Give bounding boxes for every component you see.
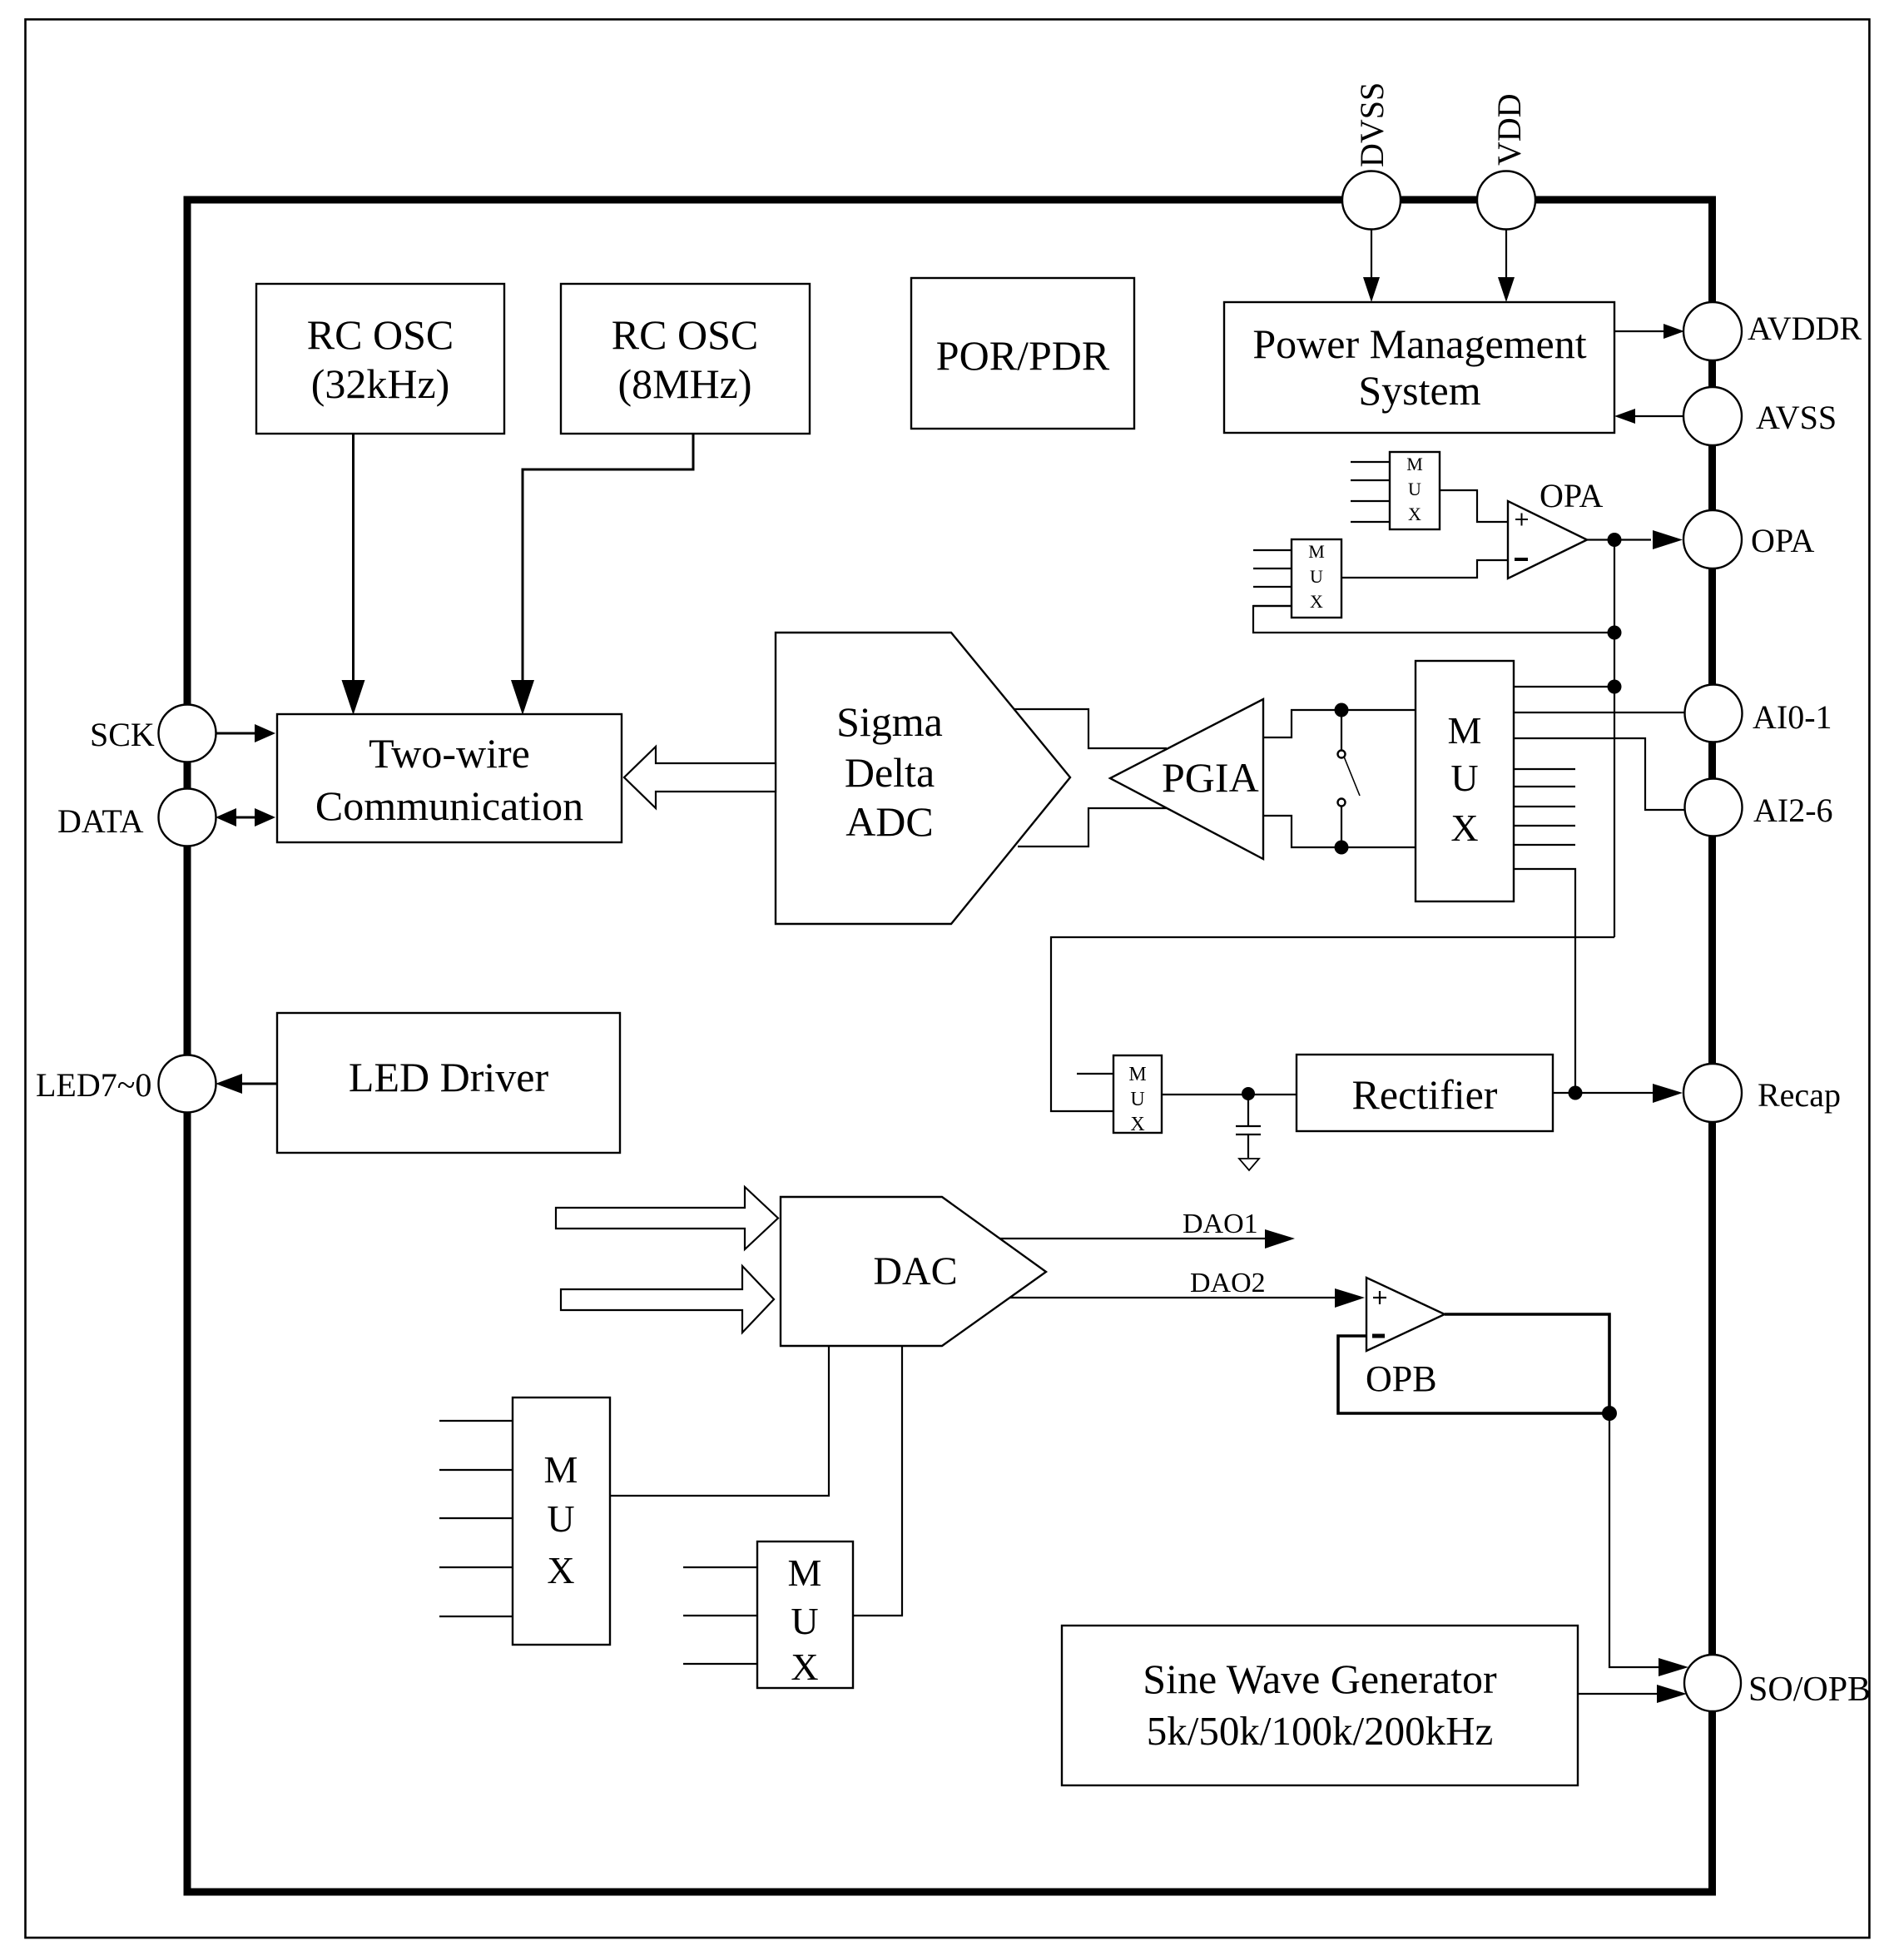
svg-text:U: U — [1130, 1089, 1144, 1110]
svg-text:M: M — [1406, 454, 1423, 474]
svg-text:M: M — [544, 1448, 578, 1491]
svg-text:OPA: OPA — [1751, 522, 1814, 559]
svg-text:X: X — [1310, 591, 1323, 612]
svg-text:DATA: DATA — [57, 802, 144, 840]
svg-text:PGIA: PGIA — [1162, 754, 1259, 801]
svg-text:X: X — [547, 1549, 574, 1591]
svg-text:Recap: Recap — [1758, 1076, 1841, 1114]
svg-text:SO/OPB: SO/OPB — [1748, 1671, 1871, 1709]
svg-text:(8MHz): (8MHz) — [617, 360, 751, 407]
svg-text:Rectifier: Rectifier — [1352, 1071, 1498, 1118]
svg-text:System: System — [1358, 367, 1480, 414]
svg-text:ADC: ADC — [845, 798, 934, 845]
svg-text:M: M — [788, 1551, 822, 1594]
svg-text:Sigma: Sigma — [836, 698, 943, 745]
svg-text:Communication: Communication — [315, 782, 583, 829]
svg-text:Delta: Delta — [845, 749, 935, 796]
svg-text:Power Management: Power Management — [1252, 320, 1586, 367]
svg-text:U: U — [1310, 566, 1323, 587]
svg-text:AVDDR: AVDDR — [1748, 310, 1862, 347]
svg-text:AI0-1: AI0-1 — [1753, 698, 1832, 736]
svg-text:X: X — [1450, 807, 1478, 849]
svg-text:(32kHz): (32kHz) — [311, 360, 450, 407]
svg-text:DAC: DAC — [873, 1249, 957, 1293]
svg-text:OPB: OPB — [1366, 1358, 1437, 1399]
svg-text:RC OSC: RC OSC — [612, 311, 758, 358]
svg-text:DVSS: DVSS — [1353, 82, 1391, 167]
svg-text:M: M — [1448, 709, 1482, 752]
svg-text:POR/PDR: POR/PDR — [936, 332, 1110, 379]
svg-text:VDD: VDD — [1490, 93, 1528, 166]
svg-text:OPA: OPA — [1540, 477, 1603, 514]
svg-text:LED7~0: LED7~0 — [36, 1066, 151, 1104]
svg-text:SCK: SCK — [90, 716, 155, 753]
svg-text:DAO1: DAO1 — [1183, 1209, 1258, 1239]
svg-text:AVSS: AVSS — [1756, 399, 1837, 436]
svg-text:M: M — [1128, 1064, 1146, 1085]
svg-text:X: X — [1408, 504, 1421, 524]
svg-text:Two-wire: Two-wire — [369, 730, 530, 777]
svg-text:X: X — [791, 1646, 818, 1688]
svg-text:5k/50k/100k/200kHz: 5k/50k/100k/200kHz — [1147, 1708, 1493, 1754]
svg-text:DAO2: DAO2 — [1190, 1268, 1266, 1298]
svg-text:LED Driver: LED Driver — [349, 1054, 549, 1100]
svg-text:AI2-6: AI2-6 — [1753, 792, 1833, 829]
svg-text:Sine Wave Generator: Sine Wave Generator — [1143, 1656, 1497, 1702]
svg-text:U: U — [1408, 479, 1421, 499]
svg-text:M: M — [1308, 541, 1325, 562]
svg-text:U: U — [1450, 757, 1478, 799]
svg-text:U: U — [791, 1600, 818, 1642]
svg-text:X: X — [1130, 1114, 1144, 1135]
svg-text:RC OSC: RC OSC — [307, 311, 454, 358]
svg-text:U: U — [547, 1497, 574, 1540]
